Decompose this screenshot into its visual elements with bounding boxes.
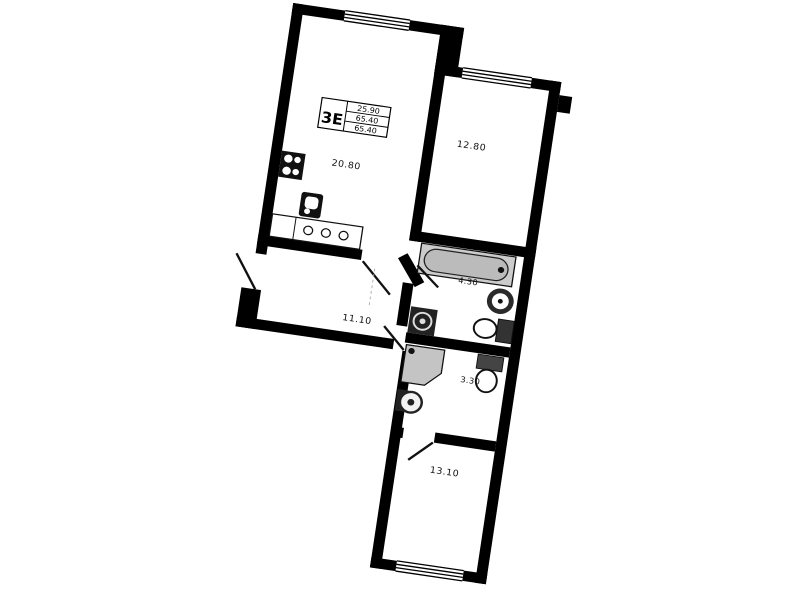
bedroom-2-window bbox=[395, 560, 464, 582]
walls bbox=[203, 2, 580, 586]
bedroom-2-door bbox=[408, 439, 433, 463]
washing-machine-2-icon bbox=[395, 389, 424, 414]
room-hallway-label: 11.10 bbox=[342, 312, 373, 327]
apartment-type-label: 3Е bbox=[320, 109, 344, 129]
entrance-door bbox=[232, 253, 260, 289]
washing-machine-icon bbox=[407, 306, 437, 336]
room-bathroom-label: 4.30 bbox=[458, 275, 479, 288]
room-bedroom-1-label: 12.80 bbox=[456, 139, 487, 154]
floor-plan-page: 3Е 25.90 65.40 65.40 20.80 12.80 4.30 11… bbox=[0, 0, 799, 600]
living-kitchen-window bbox=[344, 10, 411, 32]
floor-plan-svg: 3Е 25.90 65.40 65.40 20.80 12.80 4.30 11… bbox=[0, 0, 799, 600]
room-wc-label: 3.30 bbox=[460, 374, 481, 387]
room-living-kitchen-label: 20.80 bbox=[331, 158, 362, 173]
shower-icon bbox=[401, 345, 445, 388]
hallway-dashed-line bbox=[369, 269, 375, 307]
kitchen-sink-icon bbox=[298, 192, 323, 219]
room-bedroom-2-label: 13.10 bbox=[429, 465, 460, 480]
toilet-2-icon bbox=[473, 354, 504, 394]
bedroom-1-window bbox=[462, 67, 533, 89]
stove-icon bbox=[278, 151, 305, 180]
floor-plan-group: 3Е 25.90 65.40 65.40 20.80 12.80 4.30 11… bbox=[193, 0, 580, 587]
round-sink-icon bbox=[488, 289, 513, 313]
living-room-door bbox=[358, 261, 394, 294]
title-block: 3Е 25.90 65.40 65.40 bbox=[318, 98, 391, 138]
toilet-icon bbox=[472, 316, 514, 344]
